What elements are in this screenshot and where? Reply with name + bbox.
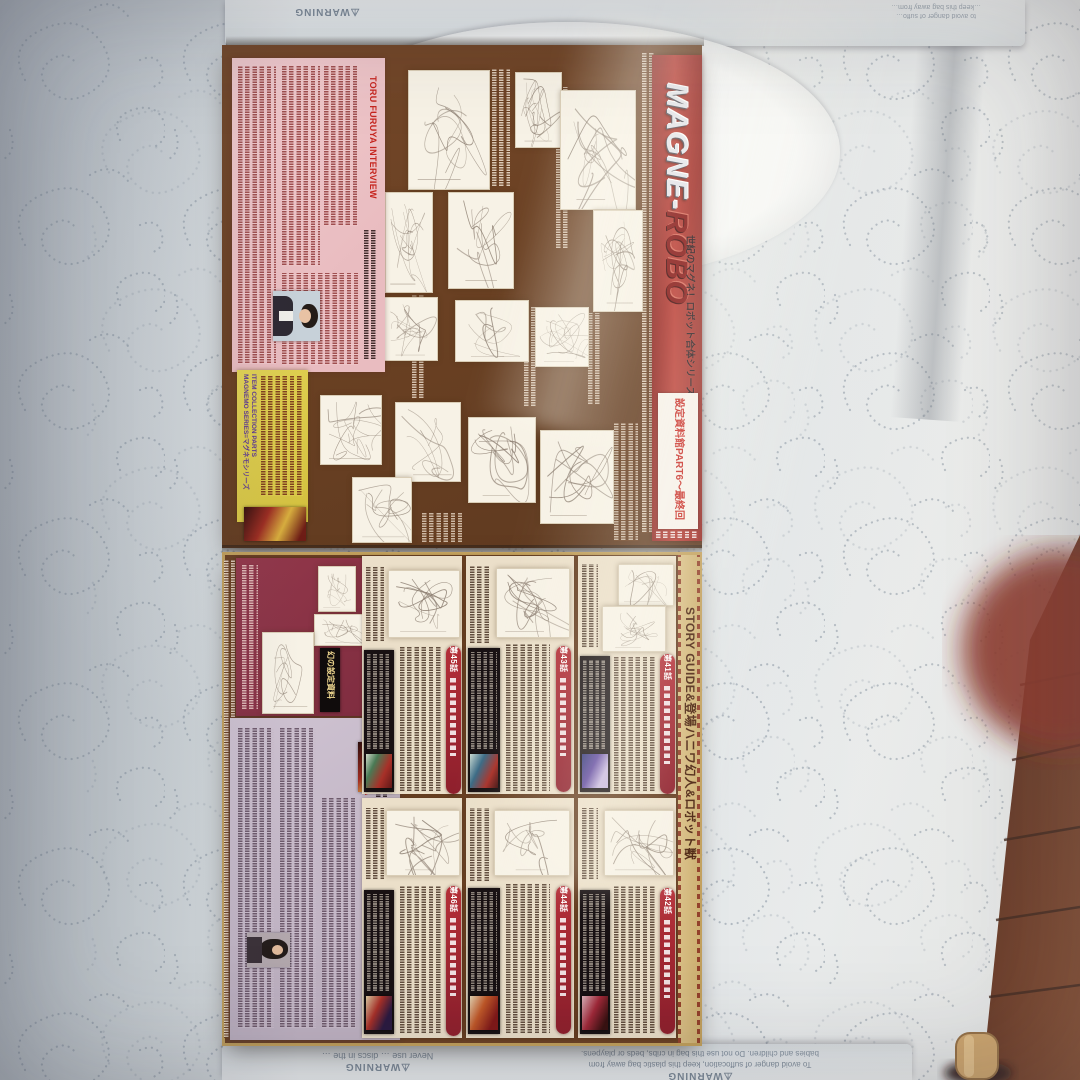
episode-photo (470, 996, 498, 1030)
episode-title-dashes (450, 678, 456, 756)
episode-strip: 第42話 (578, 798, 676, 1038)
episode-strip: 第45話 (362, 556, 462, 794)
phantom-text-column (242, 564, 258, 710)
print-text-column (492, 69, 510, 187)
episode-title-banner: 第43話 (556, 646, 571, 792)
part-label: 設定資料館PART6～最終回 (667, 398, 689, 524)
episode-sketch (388, 570, 460, 638)
warning-heading-bottom-right: ⚠WARNING (667, 1070, 732, 1080)
item-box-title: ITEM COLLECTION PARTS MAGNEMO SERIES=マグネ… (239, 374, 257, 518)
interview-text-column (324, 66, 358, 226)
item-box-text (261, 376, 303, 496)
print-text-column (422, 513, 462, 543)
episode-text (470, 566, 490, 644)
episode-title-dashes (664, 920, 670, 998)
episode-film-box (580, 890, 610, 1034)
part-label-box: 設定資料館PART6～最終回 (658, 393, 698, 529)
interviewee-portrait (273, 291, 320, 341)
episode-title-banner: 第45話 (446, 646, 461, 794)
item-title-line1: ITEM COLLECTION PARTS (250, 374, 257, 457)
warning-fragment-2: …keep this bag away from… (891, 3, 981, 10)
item-title-line2: MAGNEMO SERIES=マグネモシリーズ (242, 374, 249, 490)
logo-subtitle: 世紀のマグネ！ロボット合体シリーズ (683, 235, 698, 407)
interview-text-column (322, 798, 356, 1028)
portrait-shirt (279, 311, 293, 321)
episode-number: 第46話 (449, 886, 458, 913)
sketch-panel (314, 614, 368, 646)
episode-title-banner: 第46話 (446, 886, 461, 1036)
warning-text-top: ⚠WARNING (292, 6, 362, 17)
interview-title: TORU FURUYA INTERVIEW (360, 76, 378, 226)
episode-text (470, 808, 490, 882)
interviewee-portrait (247, 933, 290, 967)
sketch-panel (468, 417, 536, 503)
portrait-face (272, 945, 283, 955)
episode-title-banner: 第41話 (660, 654, 675, 794)
episode-strip: 第41話 (578, 556, 676, 794)
phantom-title: 幻の設定資料 (323, 651, 337, 709)
episode-film-box (468, 888, 500, 1034)
toy-colour-photo (244, 507, 306, 541)
banner-footnote (656, 531, 698, 539)
interview-text-column (238, 66, 276, 364)
sketch-panel (262, 632, 314, 714)
booklet-page-top: TORU FURUYA INTERVIEW ITEM COLLECTION PA… (222, 45, 702, 548)
episode-text (506, 644, 550, 792)
warning-line-bottom-right-2: babies and children. Do not use this bag… (581, 1049, 819, 1058)
episode-title-dashes (560, 678, 566, 756)
item-collection-box: ITEM COLLECTION PARTS MAGNEMO SERIES=マグネ… (237, 370, 308, 522)
episode-text (614, 886, 656, 1034)
episode-photo (582, 996, 608, 1030)
episode-text (582, 808, 598, 880)
sketch-panel (352, 477, 412, 543)
interview-caption (364, 230, 376, 360)
episode-number: 第44話 (559, 886, 568, 913)
warning-text-top-right: to avoid danger of suffo… …keep this bag… (856, 2, 1016, 20)
sketch-panel (540, 430, 614, 524)
episode-number: 第43話 (559, 646, 568, 673)
episode-sketch (386, 810, 460, 876)
warning-fragment-1: to avoid danger of suffo… (896, 12, 976, 19)
interview-text-column (282, 66, 320, 266)
episode-strip: 第43話 (466, 556, 574, 794)
episode-text (582, 564, 598, 648)
sketch-panel (380, 297, 438, 361)
warning-block-bottom-left: ⚠WARNING Never use … discs in the … (285, 1050, 470, 1072)
sketch-panel (395, 402, 461, 482)
portrait-face (299, 309, 311, 323)
interview-text-column (280, 728, 316, 1028)
sketch-panel (408, 70, 490, 190)
episode-sketch (604, 810, 674, 876)
interview-panel-pink: TORU FURUYA INTERVIEW (232, 58, 385, 372)
episode-text (400, 886, 442, 1034)
photo-booklet-on-bed: ⚠WARNING to avoid danger of suffo… …keep… (0, 0, 1080, 1080)
warning-block-bottom-right: ⚠WARNING To avoid danger of suffocation,… (510, 1048, 890, 1080)
warning-line-bottom-left: Never use … discs in the … (322, 1051, 434, 1061)
episode-film-box (364, 650, 394, 792)
sketch-panel (318, 566, 356, 612)
episode-strip: 第46話 (362, 798, 462, 1038)
warning-heading-bottom-left: ⚠WARNING (345, 1061, 410, 1072)
interview-text-column (238, 728, 274, 1028)
portrait-body (247, 937, 262, 963)
floor-corner (870, 535, 1080, 1080)
episode-photo (470, 754, 498, 788)
episode-title-dashes (450, 918, 456, 996)
episode-title-dashes (664, 686, 670, 764)
episode-title-banner: 第44話 (556, 886, 571, 1034)
episode-sketch (618, 564, 674, 606)
episode-number: 第42話 (663, 888, 672, 915)
episode-sketch (496, 568, 570, 638)
episode-number: 第41話 (663, 654, 672, 681)
episode-film-box (364, 890, 394, 1034)
red-blur-object (962, 550, 1080, 750)
booklet-page-bottom: 幻の設定資料 RIHOKO YOSHIDA INTERVIEW (222, 552, 702, 1046)
sketch-panel (385, 192, 433, 293)
episode-text (614, 656, 656, 792)
episode-sketch (602, 606, 666, 652)
episode-photo (366, 996, 392, 1030)
episode-film-box (468, 648, 500, 792)
episode-title-banner: 第42話 (660, 888, 675, 1034)
sketch-panel (320, 395, 382, 465)
episode-text (366, 566, 384, 642)
episode-photo (366, 754, 392, 788)
story-guide-strip: STORY GUIDE&登場ハニワ幻人&ロボット獣 (678, 555, 700, 1043)
phantom-title-box: 幻の設定資料 (320, 648, 340, 712)
episode-film-box (580, 656, 610, 792)
episode-text (506, 884, 550, 1034)
episode-text (366, 808, 384, 880)
episode-number: 第45話 (449, 646, 458, 673)
episode-photo (582, 754, 608, 788)
warning-heading-top: ⚠WARNING (294, 6, 359, 17)
episode-strip: 第44話 (466, 798, 574, 1038)
sketch-panel (448, 192, 514, 289)
warning-line-bottom-right-1: To avoid danger of suffocation, keep thi… (589, 1060, 812, 1069)
section-title: STORY GUIDE&登場ハニワ幻人&ロボット獣 (681, 607, 698, 947)
episode-sketch (494, 810, 570, 876)
episode-text (400, 646, 442, 792)
episode-title-dashes (560, 918, 566, 996)
